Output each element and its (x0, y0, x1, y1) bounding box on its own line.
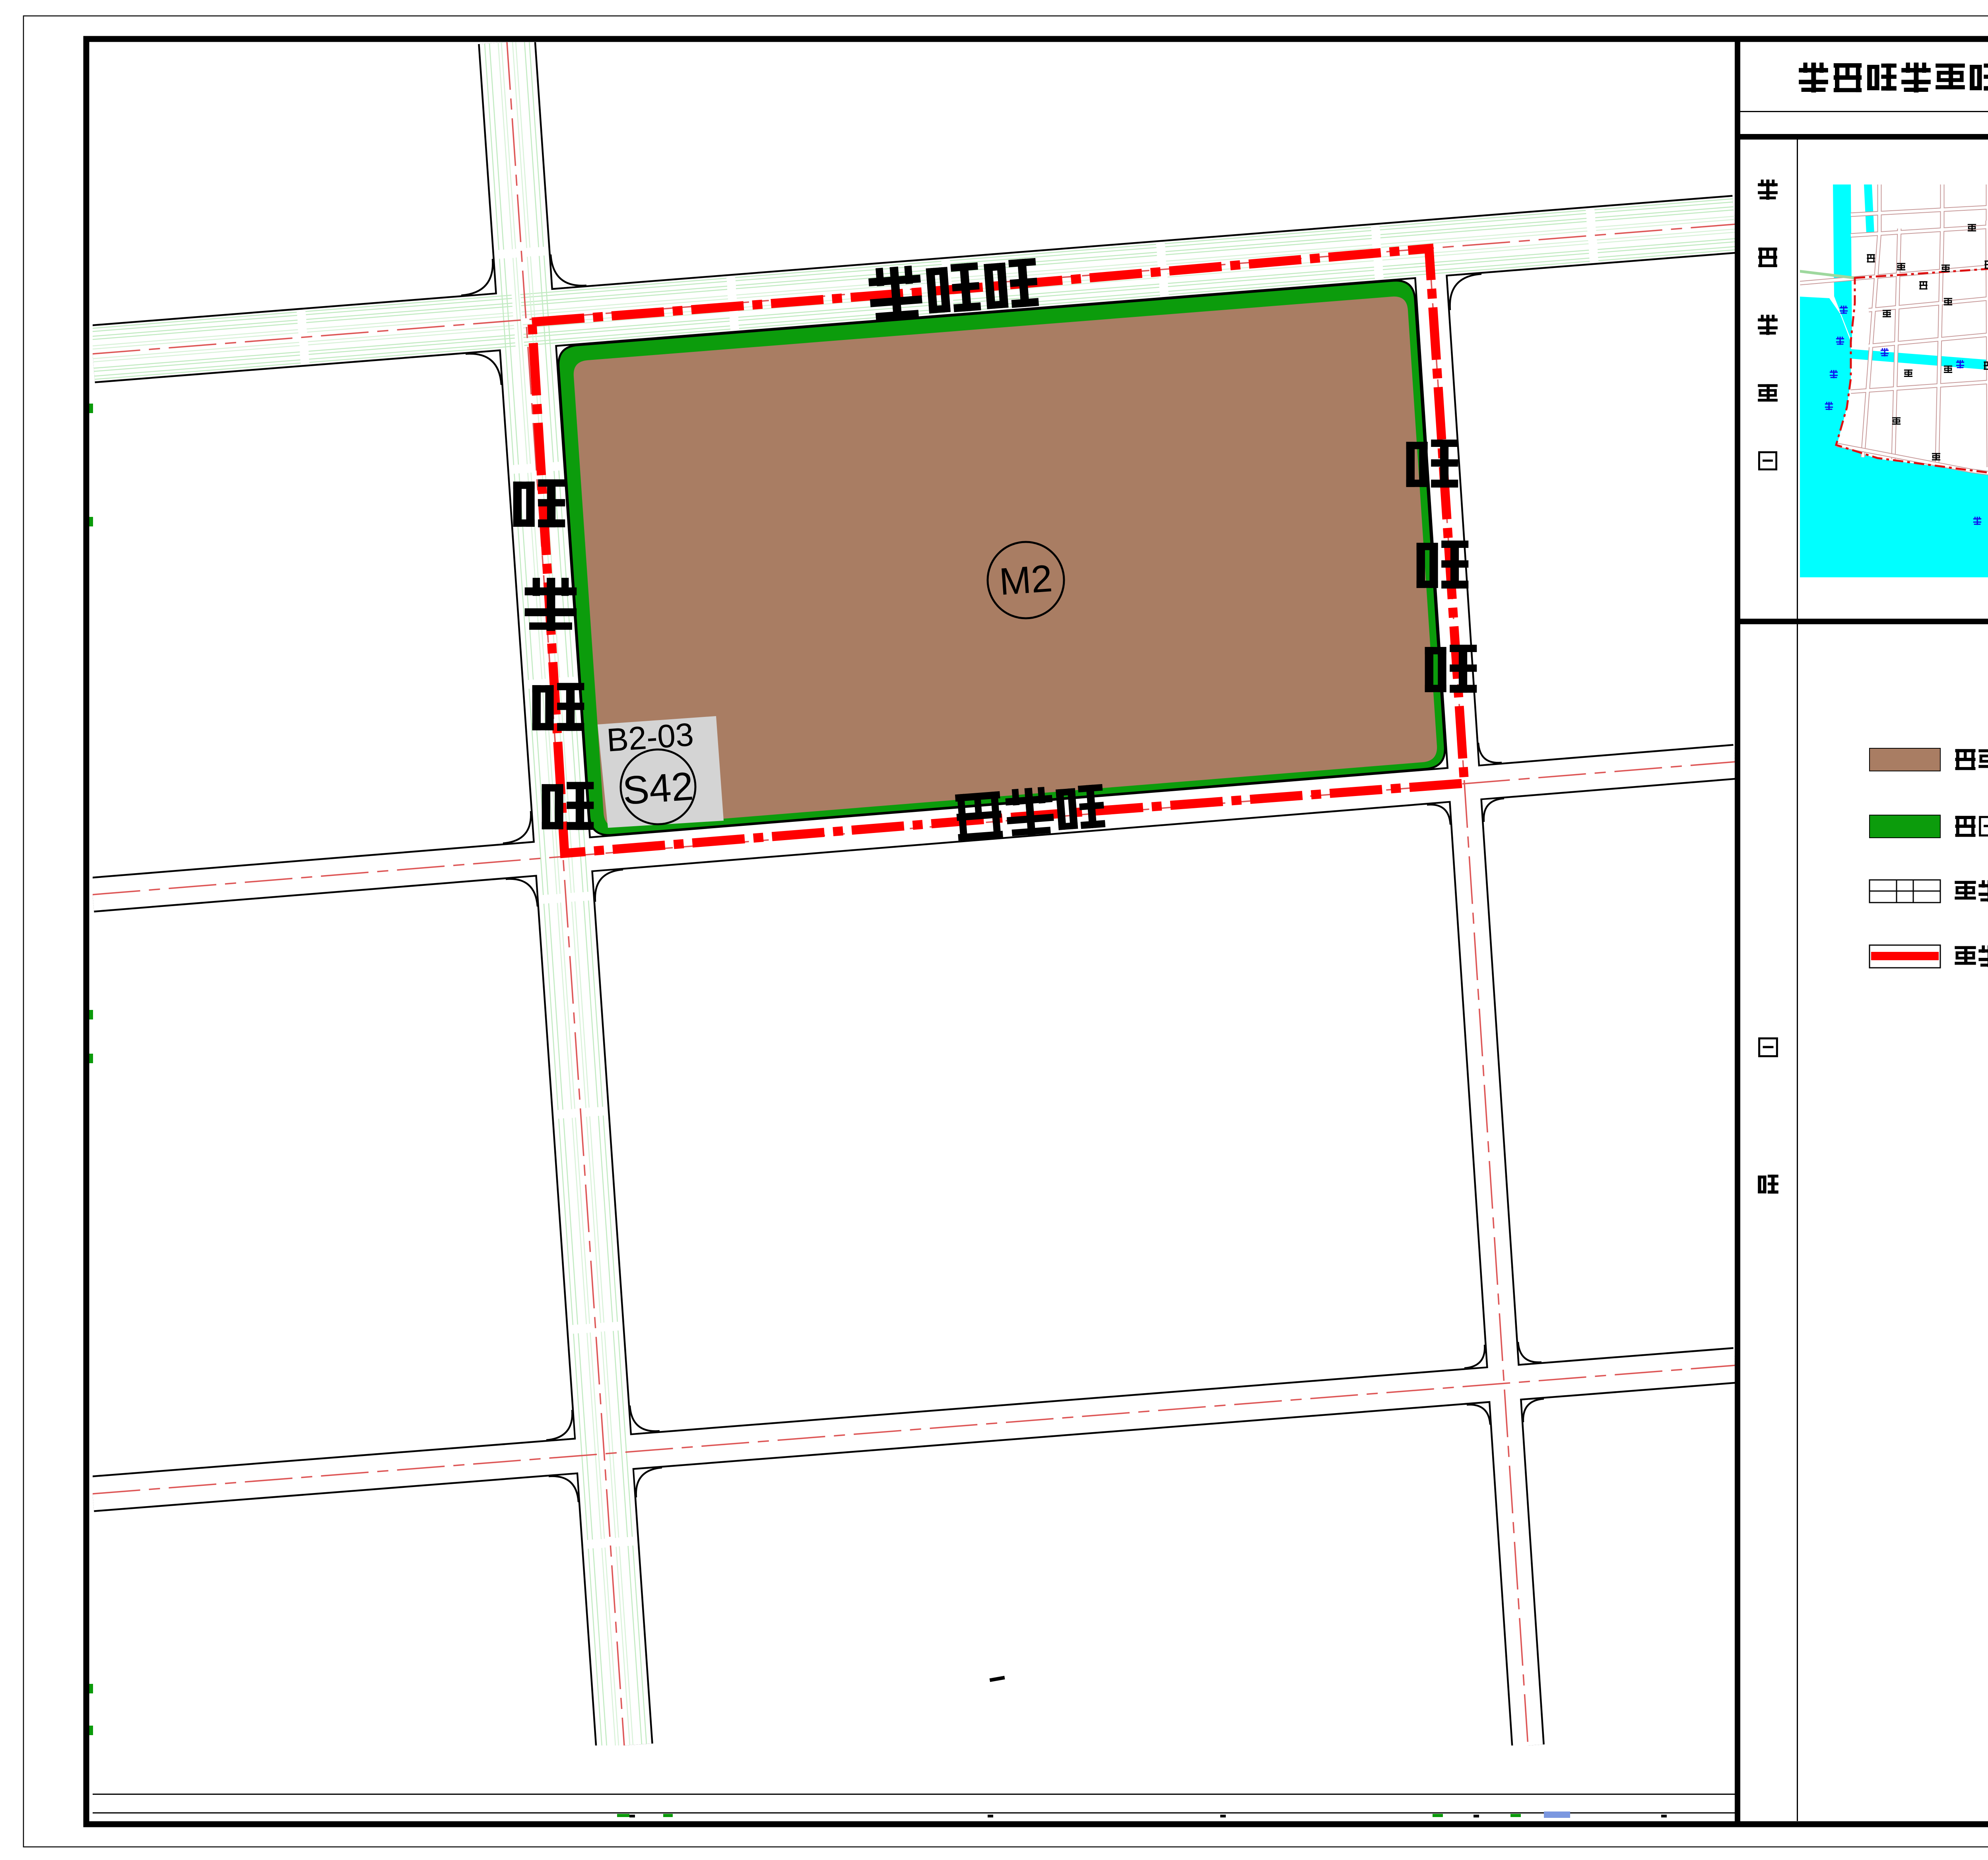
svg-text:M2: M2 (998, 557, 1054, 603)
svg-text:S42: S42 (621, 764, 695, 813)
svg-text:B2-03: B2-03 (606, 716, 695, 759)
